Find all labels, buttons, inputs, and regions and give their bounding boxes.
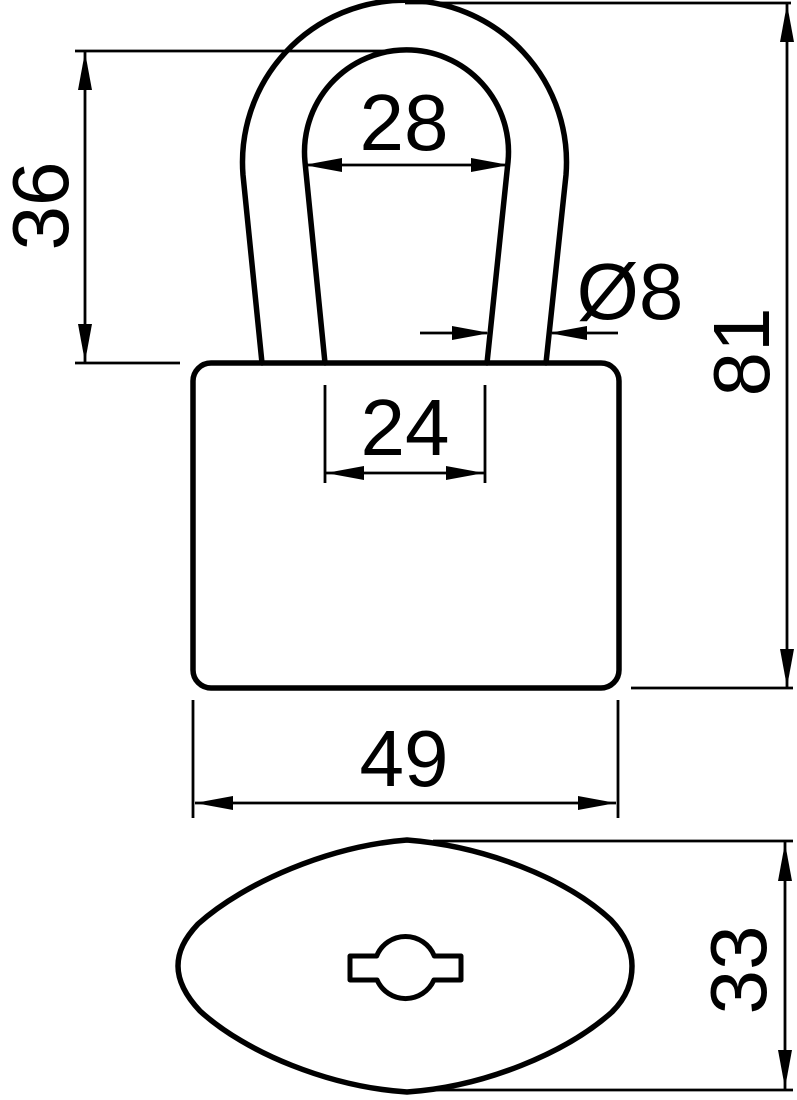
padlock-technical-drawing: 36 28 Ø8 24 49 81 <box>0 0 797 1100</box>
arrowhead-down <box>780 649 794 687</box>
arrowhead-down <box>778 1050 792 1088</box>
dimension-body-depth: 33 <box>429 841 793 1090</box>
shackle-outer-outline <box>242 0 566 363</box>
dimension-shackle-leg-spacing: 24 <box>325 383 485 483</box>
dimension-label-36: 36 <box>0 162 85 251</box>
arrowhead-down <box>78 324 92 362</box>
dimension-label-49: 49 <box>360 714 449 803</box>
arrowhead-right <box>452 326 490 340</box>
dimension-label-33: 33 <box>694 926 783 1015</box>
arrowhead-up <box>78 52 92 90</box>
dimension-label-81: 81 <box>697 308 786 397</box>
arrowhead-left <box>304 158 342 172</box>
arrowhead-left <box>326 466 364 480</box>
arrowhead-right <box>578 796 616 810</box>
dimension-shackle-inner-width: 28 <box>304 78 509 172</box>
arrowhead-right <box>471 158 509 172</box>
dimension-label-diameter-8: Ø8 <box>577 247 684 336</box>
arrowhead-left <box>195 796 233 810</box>
arrowhead-right <box>446 466 484 480</box>
keyhole-outline <box>350 936 461 998</box>
drawing-canvas: 36 28 Ø8 24 49 81 <box>0 0 797 1100</box>
arrowhead-up <box>780 4 794 42</box>
dimension-body-width: 49 <box>193 700 618 818</box>
dimension-label-24: 24 <box>361 383 450 472</box>
arrowhead-up <box>778 843 792 881</box>
top-view <box>178 840 632 1092</box>
dimension-overall-height: 81 <box>405 3 794 688</box>
dimension-shackle-height: 36 <box>0 51 385 363</box>
dimension-label-28: 28 <box>360 78 449 167</box>
